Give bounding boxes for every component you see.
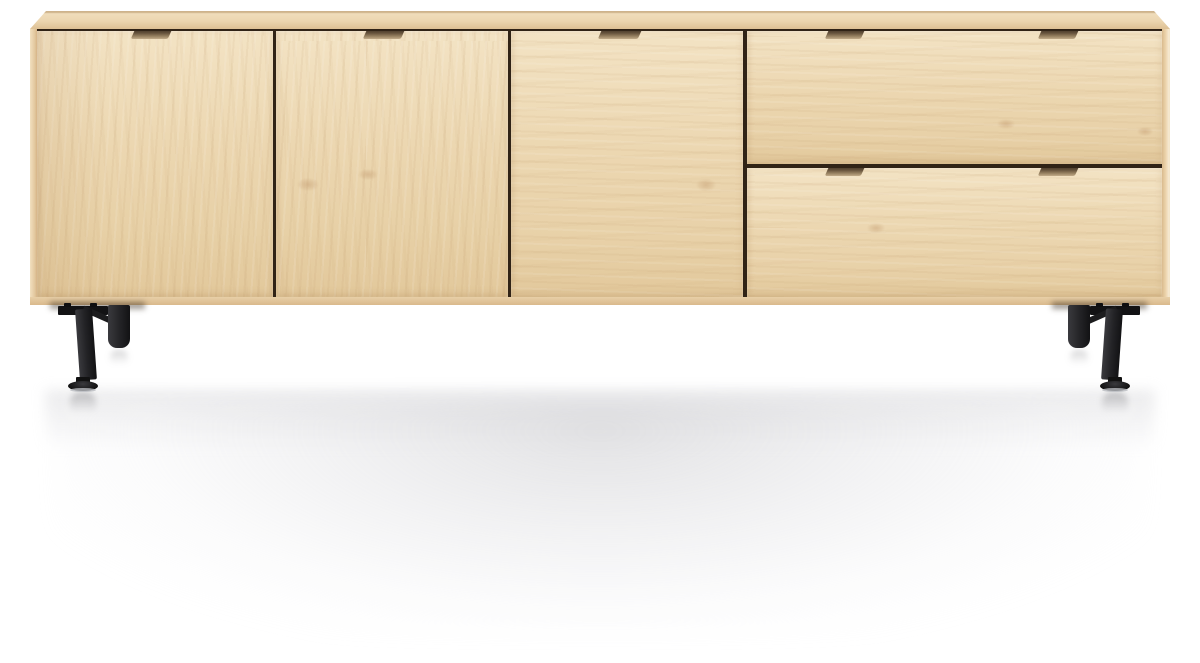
foot-reflection-left-front — [70, 392, 96, 416]
floor-reflection — [55, 398, 1145, 633]
cabinet-left-edge — [30, 29, 37, 305]
wood-knot — [358, 169, 378, 180]
finger-pull-drawer-bottom-left — [825, 168, 865, 176]
adjustable-foot-right — [1100, 381, 1130, 391]
finger-pull-door-3 — [598, 31, 642, 39]
front-leg-right — [1101, 308, 1123, 380]
door-panel-3 — [511, 31, 743, 297]
finger-pull-drawer-bottom-right — [1038, 168, 1079, 176]
cabinet-body — [30, 29, 1170, 305]
adjustable-foot-left — [68, 381, 98, 391]
back-leg-left — [108, 305, 130, 348]
back-leg-right — [1068, 305, 1090, 348]
front-panels — [37, 31, 1162, 297]
foot-reflection-left-back — [110, 350, 128, 367]
cabinet-bottom-edge — [30, 297, 1170, 305]
foot-reflection-right-front — [1102, 392, 1128, 416]
product-photo — [0, 0, 1200, 663]
door-panel-2 — [276, 31, 508, 297]
cabinet-right-edge — [1162, 29, 1170, 305]
door-panel-1 — [37, 31, 273, 297]
drawer-stack — [747, 31, 1162, 297]
finger-pull-drawer-top-left — [825, 31, 865, 39]
wood-knot — [297, 178, 319, 191]
wood-knot — [867, 223, 885, 233]
wood-knot — [1137, 127, 1153, 136]
drawer-panel-top — [747, 31, 1162, 164]
finger-pull-door-1 — [131, 31, 172, 39]
drawer-panel-bottom — [747, 168, 1162, 297]
foot-reflection-right-back — [1070, 350, 1088, 367]
front-leg-left — [75, 308, 97, 380]
wood-knot — [696, 179, 716, 191]
finger-pull-drawer-top-right — [1038, 31, 1079, 39]
finger-pull-door-2 — [363, 31, 405, 39]
cabinet-top-panel — [30, 11, 1170, 29]
wood-knot — [997, 119, 1015, 129]
